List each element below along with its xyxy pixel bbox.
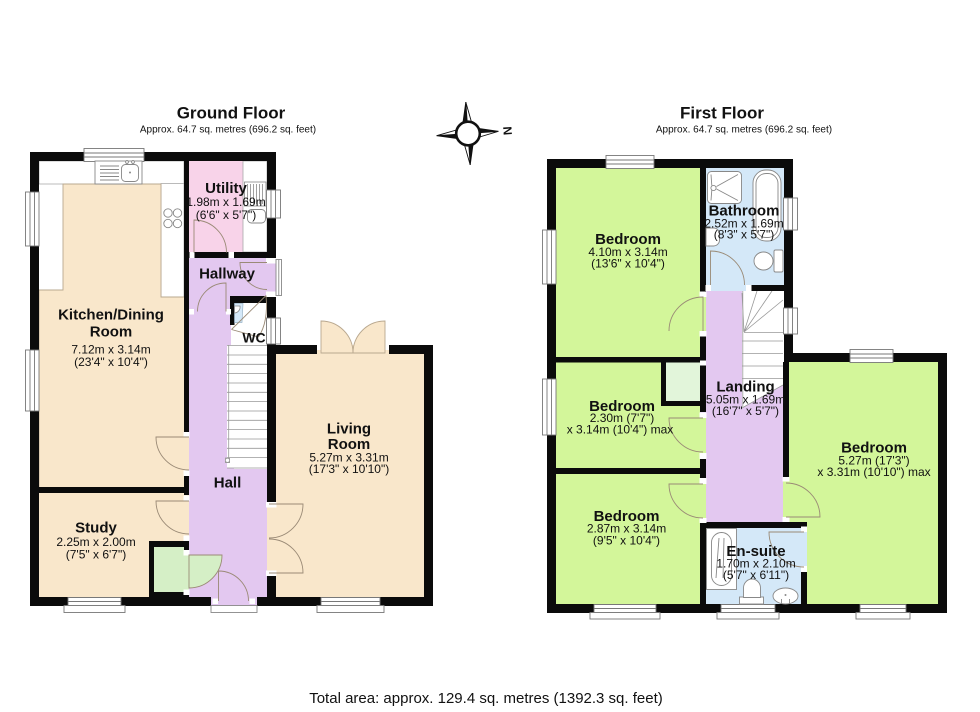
svg-text:1.98m x 1.69m: 1.98m x 1.69m [186, 195, 265, 209]
svg-text:WC: WC [242, 330, 265, 346]
svg-text:Ground Floor: Ground Floor [177, 104, 286, 123]
svg-text:(13'6" x 10'4"): (13'6" x 10'4") [591, 257, 665, 271]
svg-text:(16'7" x 5'7"): (16'7" x 5'7") [712, 404, 779, 418]
svg-text:(6'6" x 5'7"): (6'6" x 5'7") [196, 208, 256, 222]
svg-text:x 3.14m (10'4") max: x 3.14m (10'4") max [567, 423, 674, 437]
svg-text:N: N [500, 126, 515, 136]
svg-text:Approx. 64.7 sq. metres (696.2: Approx. 64.7 sq. metres (696.2 sq. feet) [140, 125, 316, 136]
svg-text:First Floor: First Floor [680, 104, 764, 123]
svg-text:Hall: Hall [214, 475, 242, 492]
svg-text:Kitchen/Dining: Kitchen/Dining [58, 307, 164, 324]
svg-text:(8'3" x 5'7"): (8'3" x 5'7") [714, 228, 774, 242]
svg-text:(9'5" x 10'4"): (9'5" x 10'4") [593, 534, 660, 548]
svg-text:(23'4" x 10'4"): (23'4" x 10'4") [74, 355, 148, 369]
svg-text:Room: Room [90, 324, 133, 341]
svg-text:Study: Study [75, 520, 117, 537]
svg-text:x 3.31m (10'10") max: x 3.31m (10'10") max [817, 465, 930, 479]
svg-text:Total area: approx. 129.4 sq.: Total area: approx. 129.4 sq. metres (13… [309, 690, 663, 707]
svg-text:Hallway: Hallway [199, 266, 256, 283]
svg-text:(5'7" x 6'11"): (5'7" x 6'11") [723, 568, 789, 582]
svg-text:(17'3" x 10'10"): (17'3" x 10'10") [309, 462, 389, 476]
svg-text:Living: Living [327, 421, 371, 438]
svg-text:(7'5" x 6'7"): (7'5" x 6'7") [66, 548, 126, 562]
svg-text:Approx. 64.7 sq. metres (696.2: Approx. 64.7 sq. metres (696.2 sq. feet) [656, 125, 832, 136]
